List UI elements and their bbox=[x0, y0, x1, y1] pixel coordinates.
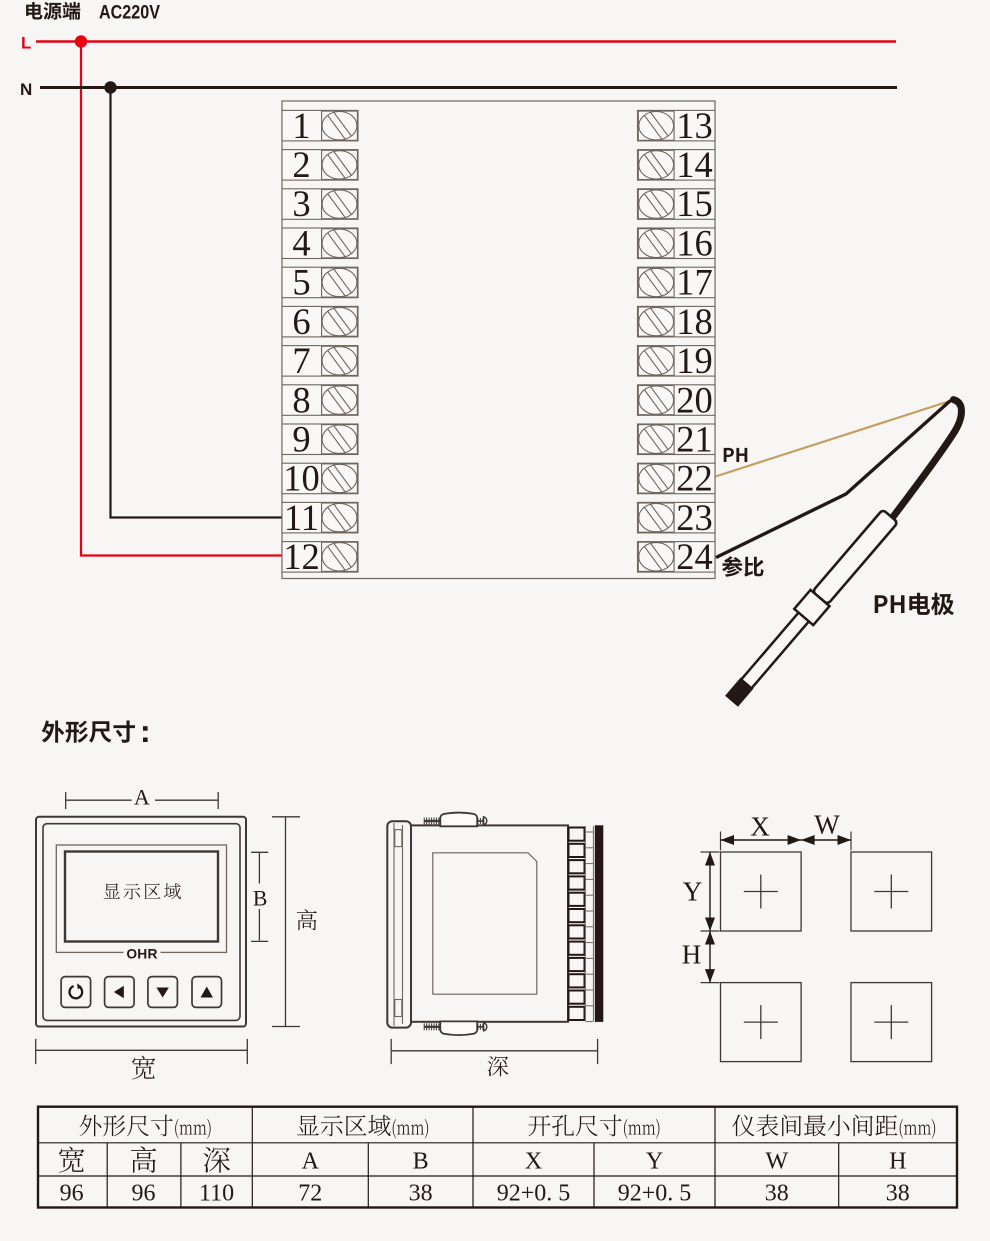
svg-text:96: 96 bbox=[60, 1181, 84, 1207]
svg-text:38: 38 bbox=[409, 1181, 433, 1207]
svg-text:22: 22 bbox=[676, 458, 713, 499]
svg-text:1: 1 bbox=[292, 105, 310, 146]
svg-text:X: X bbox=[525, 1149, 542, 1175]
svg-text:W: W bbox=[814, 810, 840, 840]
svg-text:16: 16 bbox=[676, 222, 713, 263]
svg-text:15: 15 bbox=[676, 183, 713, 224]
svg-text:AC220V: AC220V bbox=[99, 3, 160, 24]
svg-text:19: 19 bbox=[676, 340, 713, 381]
svg-text:L: L bbox=[21, 34, 31, 53]
svg-text:24: 24 bbox=[676, 536, 713, 577]
svg-text:3: 3 bbox=[292, 183, 310, 224]
svg-text:B: B bbox=[253, 887, 268, 911]
svg-text:14: 14 bbox=[676, 144, 713, 185]
svg-text:Y: Y bbox=[646, 1149, 663, 1175]
svg-text:38: 38 bbox=[886, 1181, 910, 1207]
svg-text:21: 21 bbox=[676, 418, 713, 459]
svg-text:17: 17 bbox=[676, 262, 713, 303]
svg-text:7: 7 bbox=[292, 340, 310, 381]
svg-text:H: H bbox=[889, 1149, 906, 1175]
svg-text:23: 23 bbox=[676, 497, 713, 538]
svg-text:5: 5 bbox=[292, 262, 310, 303]
svg-text:W: W bbox=[765, 1149, 788, 1175]
svg-text:Y: Y bbox=[683, 877, 703, 907]
svg-text:A: A bbox=[302, 1149, 320, 1175]
svg-text:6: 6 bbox=[292, 301, 310, 342]
svg-text:X: X bbox=[750, 812, 770, 842]
svg-text:A: A bbox=[134, 785, 150, 810]
svg-text:38: 38 bbox=[765, 1181, 789, 1207]
svg-text:110: 110 bbox=[199, 1181, 234, 1207]
svg-text:N: N bbox=[20, 80, 32, 99]
svg-text:96: 96 bbox=[132, 1181, 156, 1207]
svg-text:H: H bbox=[682, 940, 702, 970]
svg-text:10: 10 bbox=[283, 458, 320, 499]
svg-text:72: 72 bbox=[298, 1181, 322, 1207]
svg-text:12: 12 bbox=[283, 536, 320, 577]
svg-text:8: 8 bbox=[292, 379, 310, 420]
svg-text:18: 18 bbox=[676, 301, 713, 342]
svg-text:20: 20 bbox=[676, 379, 713, 420]
svg-text:B: B bbox=[413, 1149, 429, 1175]
svg-text:92+0. 5: 92+0. 5 bbox=[618, 1181, 692, 1207]
svg-text:92+0. 5: 92+0. 5 bbox=[497, 1181, 571, 1207]
svg-text:OHR: OHR bbox=[126, 946, 157, 961]
svg-text:2: 2 bbox=[292, 144, 310, 185]
svg-text:13: 13 bbox=[676, 105, 713, 146]
svg-text:4: 4 bbox=[292, 222, 310, 263]
svg-text:11: 11 bbox=[284, 497, 319, 538]
svg-text:9: 9 bbox=[292, 418, 310, 459]
